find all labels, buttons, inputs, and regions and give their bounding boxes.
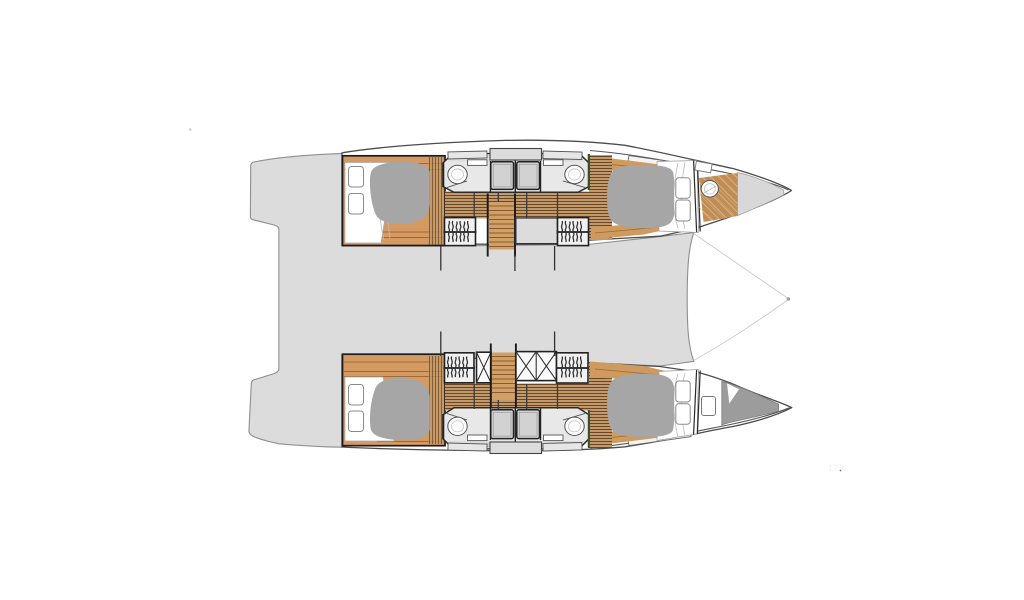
svg-text:17%: 17% [828,463,846,473]
